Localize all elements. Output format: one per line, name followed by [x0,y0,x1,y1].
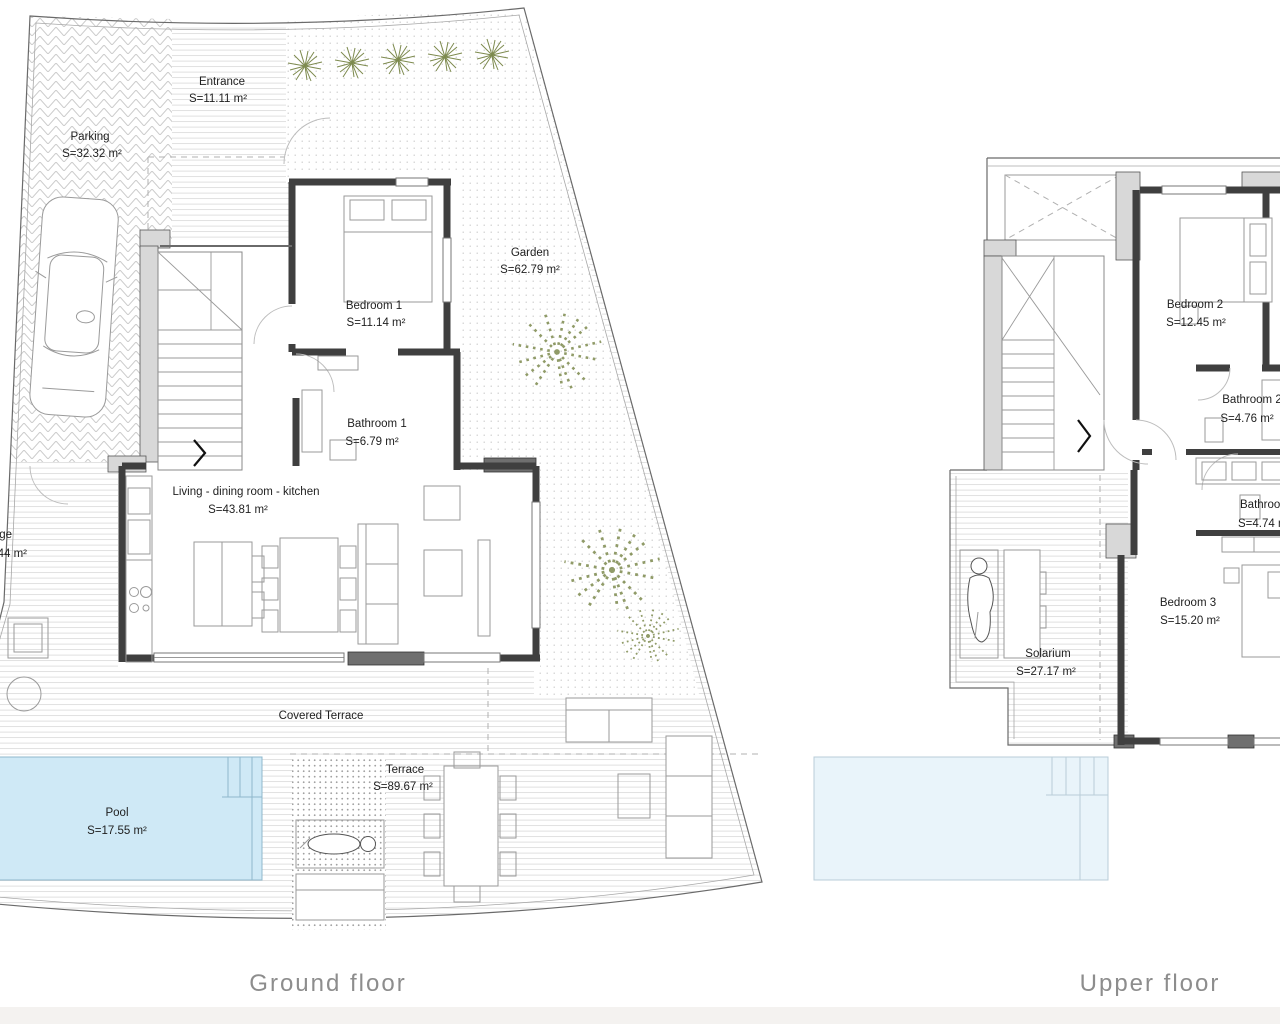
floorplan-drawing: Parking S=32.32 m² Entrance S=11.11 m² G… [0,0,1280,1024]
label-terrace: Terrace [386,764,424,776]
caption-ground-floor: Ground floor [249,970,406,998]
label-pool-area: S=17.55 m² [87,825,147,837]
label-bedroom3: Bedroom 3 [1160,597,1216,609]
upper-floor-plan: Bedroom 2 S=12.45 m² Bathroom 2 S=4.76 m… [814,158,1280,880]
label-living-area: S=43.81 m² [208,504,268,516]
bathroom2-fixtures [1205,380,1280,442]
floorplan-page: Parking S=32.32 m² Entrance S=11.11 m² G… [0,0,1280,1024]
label-bedroom1-area: S=11.14 m² [347,317,406,329]
label-solarium-area: S=27.17 m² [1016,666,1076,678]
staircase-upper [1002,256,1104,470]
label-bedroom3-area: S=15.20 m² [1160,615,1220,627]
label-entrance: Entrance [199,76,245,88]
label-parking: Parking [71,131,110,143]
pool [0,757,262,880]
armchair [424,550,462,596]
bedroom3-furniture [1222,537,1280,657]
label-bathroom2: Bathroom 2 [1222,394,1280,406]
ground-floor-plan: Parking S=32.32 m² Entrance S=11.11 m² G… [0,8,762,930]
sofa-indoor [358,524,398,644]
label-solarium: Solarium [1025,648,1070,660]
label-entrance-area: S=11.11 m² [189,93,247,105]
label-terrace-area: S=89.67 m² [373,781,433,793]
label-bathroom3-area: S=4.74 m [1238,518,1280,530]
label-parking-area: S=32.32 m² [62,148,122,160]
label-bathroom2-area: S=4.76 m² [1220,413,1274,425]
label-cutoff-room-area: 44 m² [0,548,27,560]
label-bathroom1: Bathroom 1 [347,418,406,430]
label-bedroom2-area: S=12.45 m² [1166,317,1226,329]
label-bathroom1-area: S=6.79 m² [345,436,399,448]
label-bedroom2: Bedroom 2 [1167,299,1223,311]
label-garden: Garden [511,247,549,259]
label-bathroom3: Bathroom [1240,499,1280,511]
label-covered-terrace: Covered Terrace [279,710,364,722]
label-garden-area: S=62.79 m² [500,264,560,276]
bed-bedroom1 [344,196,432,302]
caption-upper-floor: Upper floor [1080,970,1221,998]
label-bedroom1: Bedroom 1 [346,300,402,312]
void-cross-area [1005,175,1120,240]
label-pool: Pool [105,807,128,819]
bottom-band [0,1007,1280,1024]
label-living: Living - dining room - kitchen [172,486,319,498]
pool-upper [814,757,1108,880]
label-cutoff-room: ge [0,529,12,541]
